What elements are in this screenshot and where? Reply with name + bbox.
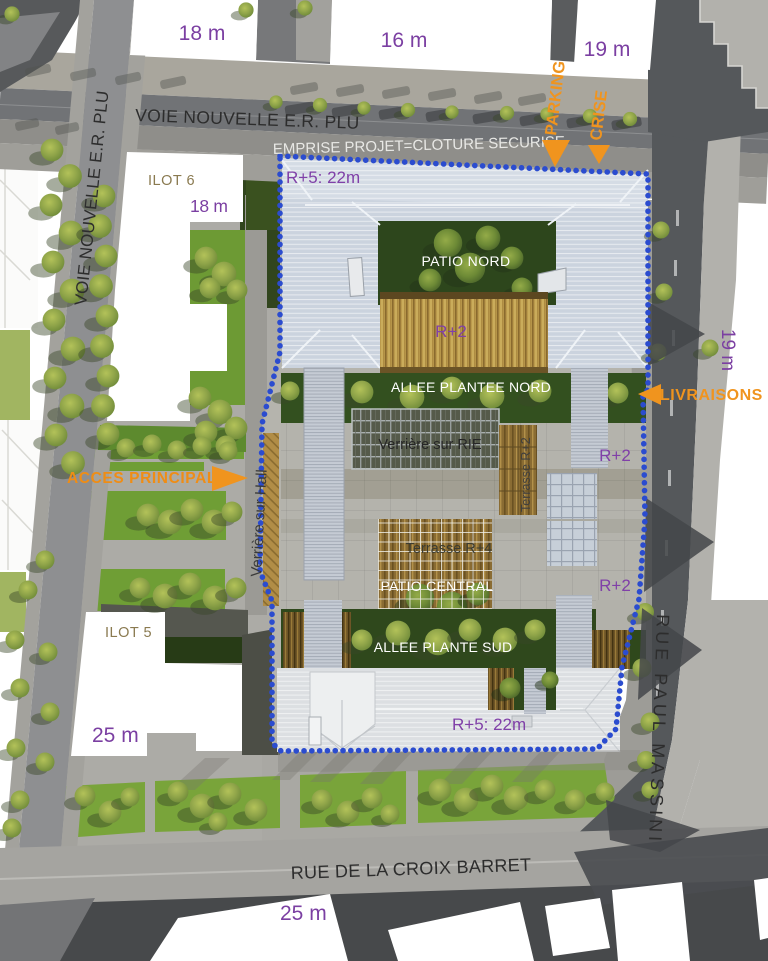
svg-text:25 m: 25 m [280,902,327,925]
svg-text:PATIO NORD: PATIO NORD [421,253,510,269]
svg-text:19 m: 19 m [584,38,631,61]
svg-text:LIVRAISONS: LIVRAISONS [660,387,763,404]
svg-text:R+2: R+2 [599,446,631,465]
svg-text:ALLEE PLANTEE NORD: ALLEE PLANTEE NORD [391,379,551,395]
svg-text:ACCES PRINCIPAL: ACCES PRINCIPAL [67,470,217,487]
svg-text:16 m: 16 m [381,29,428,52]
svg-text:19 m: 19 m [717,329,738,371]
svg-text:Verrière sur RIE: Verrière sur RIE [378,437,481,453]
svg-text:Terrasse R+2: Terrasse R+2 [519,437,533,512]
svg-text:18 m: 18 m [190,196,228,216]
svg-text:ILOT 6: ILOT 6 [148,173,195,189]
svg-text:18 m: 18 m [179,22,226,45]
svg-text:Terrasse R+4: Terrasse R+4 [406,541,493,557]
svg-text:R+5: 22m: R+5: 22m [452,715,526,734]
svg-text:R+2: R+2 [599,576,631,595]
svg-text:ALLEE PLANTE SUD: ALLEE PLANTE SUD [374,639,513,655]
svg-text:R+5: 22m: R+5: 22m [286,168,360,187]
svg-text:R+2: R+2 [435,322,467,341]
svg-text:25 m: 25 m [92,724,139,747]
svg-text:ILOT 5: ILOT 5 [105,625,152,641]
svg-text:PATIO CENTRAL: PATIO CENTRAL [380,578,493,594]
